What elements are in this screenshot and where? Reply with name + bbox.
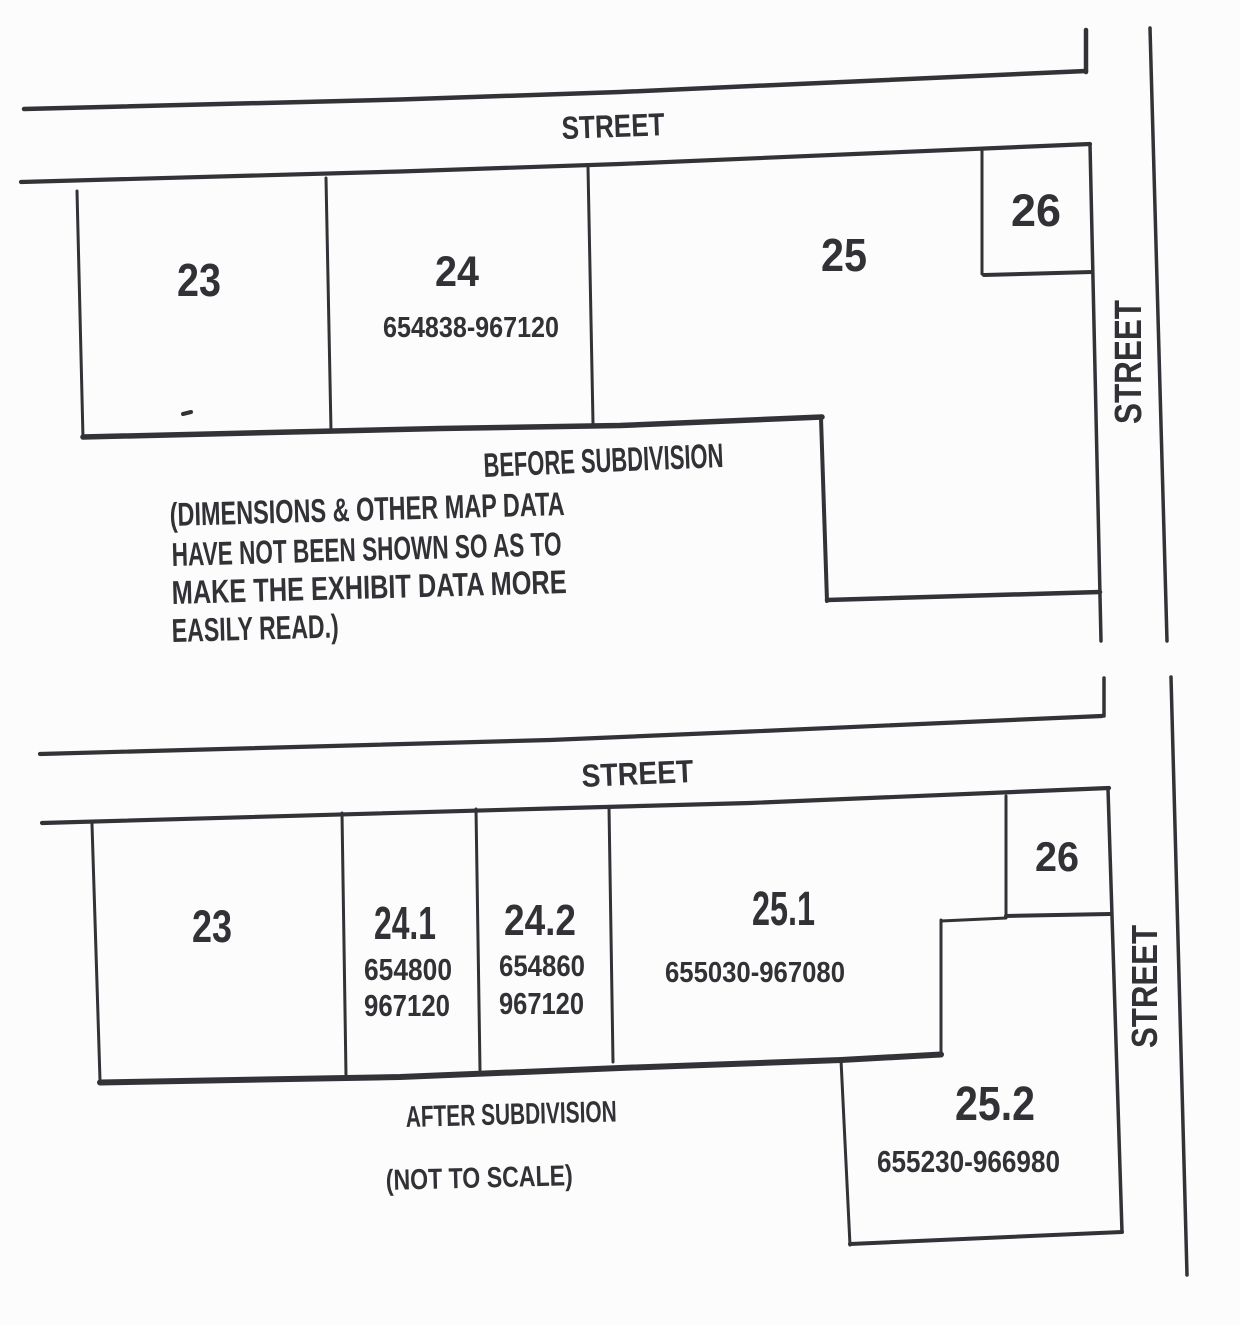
svg-text:STREET: STREET: [1124, 925, 1165, 1048]
svg-text:EASILY READ.): EASILY READ.): [171, 607, 339, 649]
svg-text:25.2: 25.2: [955, 1078, 1035, 1131]
svg-text:STREET: STREET: [561, 106, 666, 146]
svg-text:23: 23: [192, 901, 232, 952]
svg-text:26: 26: [1035, 833, 1079, 880]
svg-text:967120: 967120: [364, 988, 450, 1023]
svg-text:23: 23: [177, 254, 221, 306]
svg-text:STREET: STREET: [581, 753, 695, 794]
svg-text:24.1: 24.1: [374, 897, 436, 949]
svg-text:STREET: STREET: [1108, 300, 1150, 424]
svg-text:AFTER SUBDIVISION: AFTER SUBDIVISION: [405, 1095, 617, 1134]
svg-text:654800: 654800: [364, 952, 452, 987]
svg-text:25: 25: [821, 229, 867, 281]
svg-text:655030-967080: 655030-967080: [665, 957, 845, 989]
svg-text:967120: 967120: [499, 986, 584, 1021]
svg-text:25.1: 25.1: [752, 883, 815, 936]
svg-text:26: 26: [1011, 185, 1061, 236]
svg-text:24: 24: [435, 248, 479, 296]
svg-text:655230-966980: 655230-966980: [877, 1144, 1060, 1179]
svg-text:24.2: 24.2: [504, 896, 576, 945]
svg-text:(NOT TO SCALE): (NOT TO SCALE): [385, 1160, 573, 1197]
svg-text:654838-967120: 654838-967120: [383, 312, 559, 344]
svg-text:654860: 654860: [499, 950, 585, 983]
